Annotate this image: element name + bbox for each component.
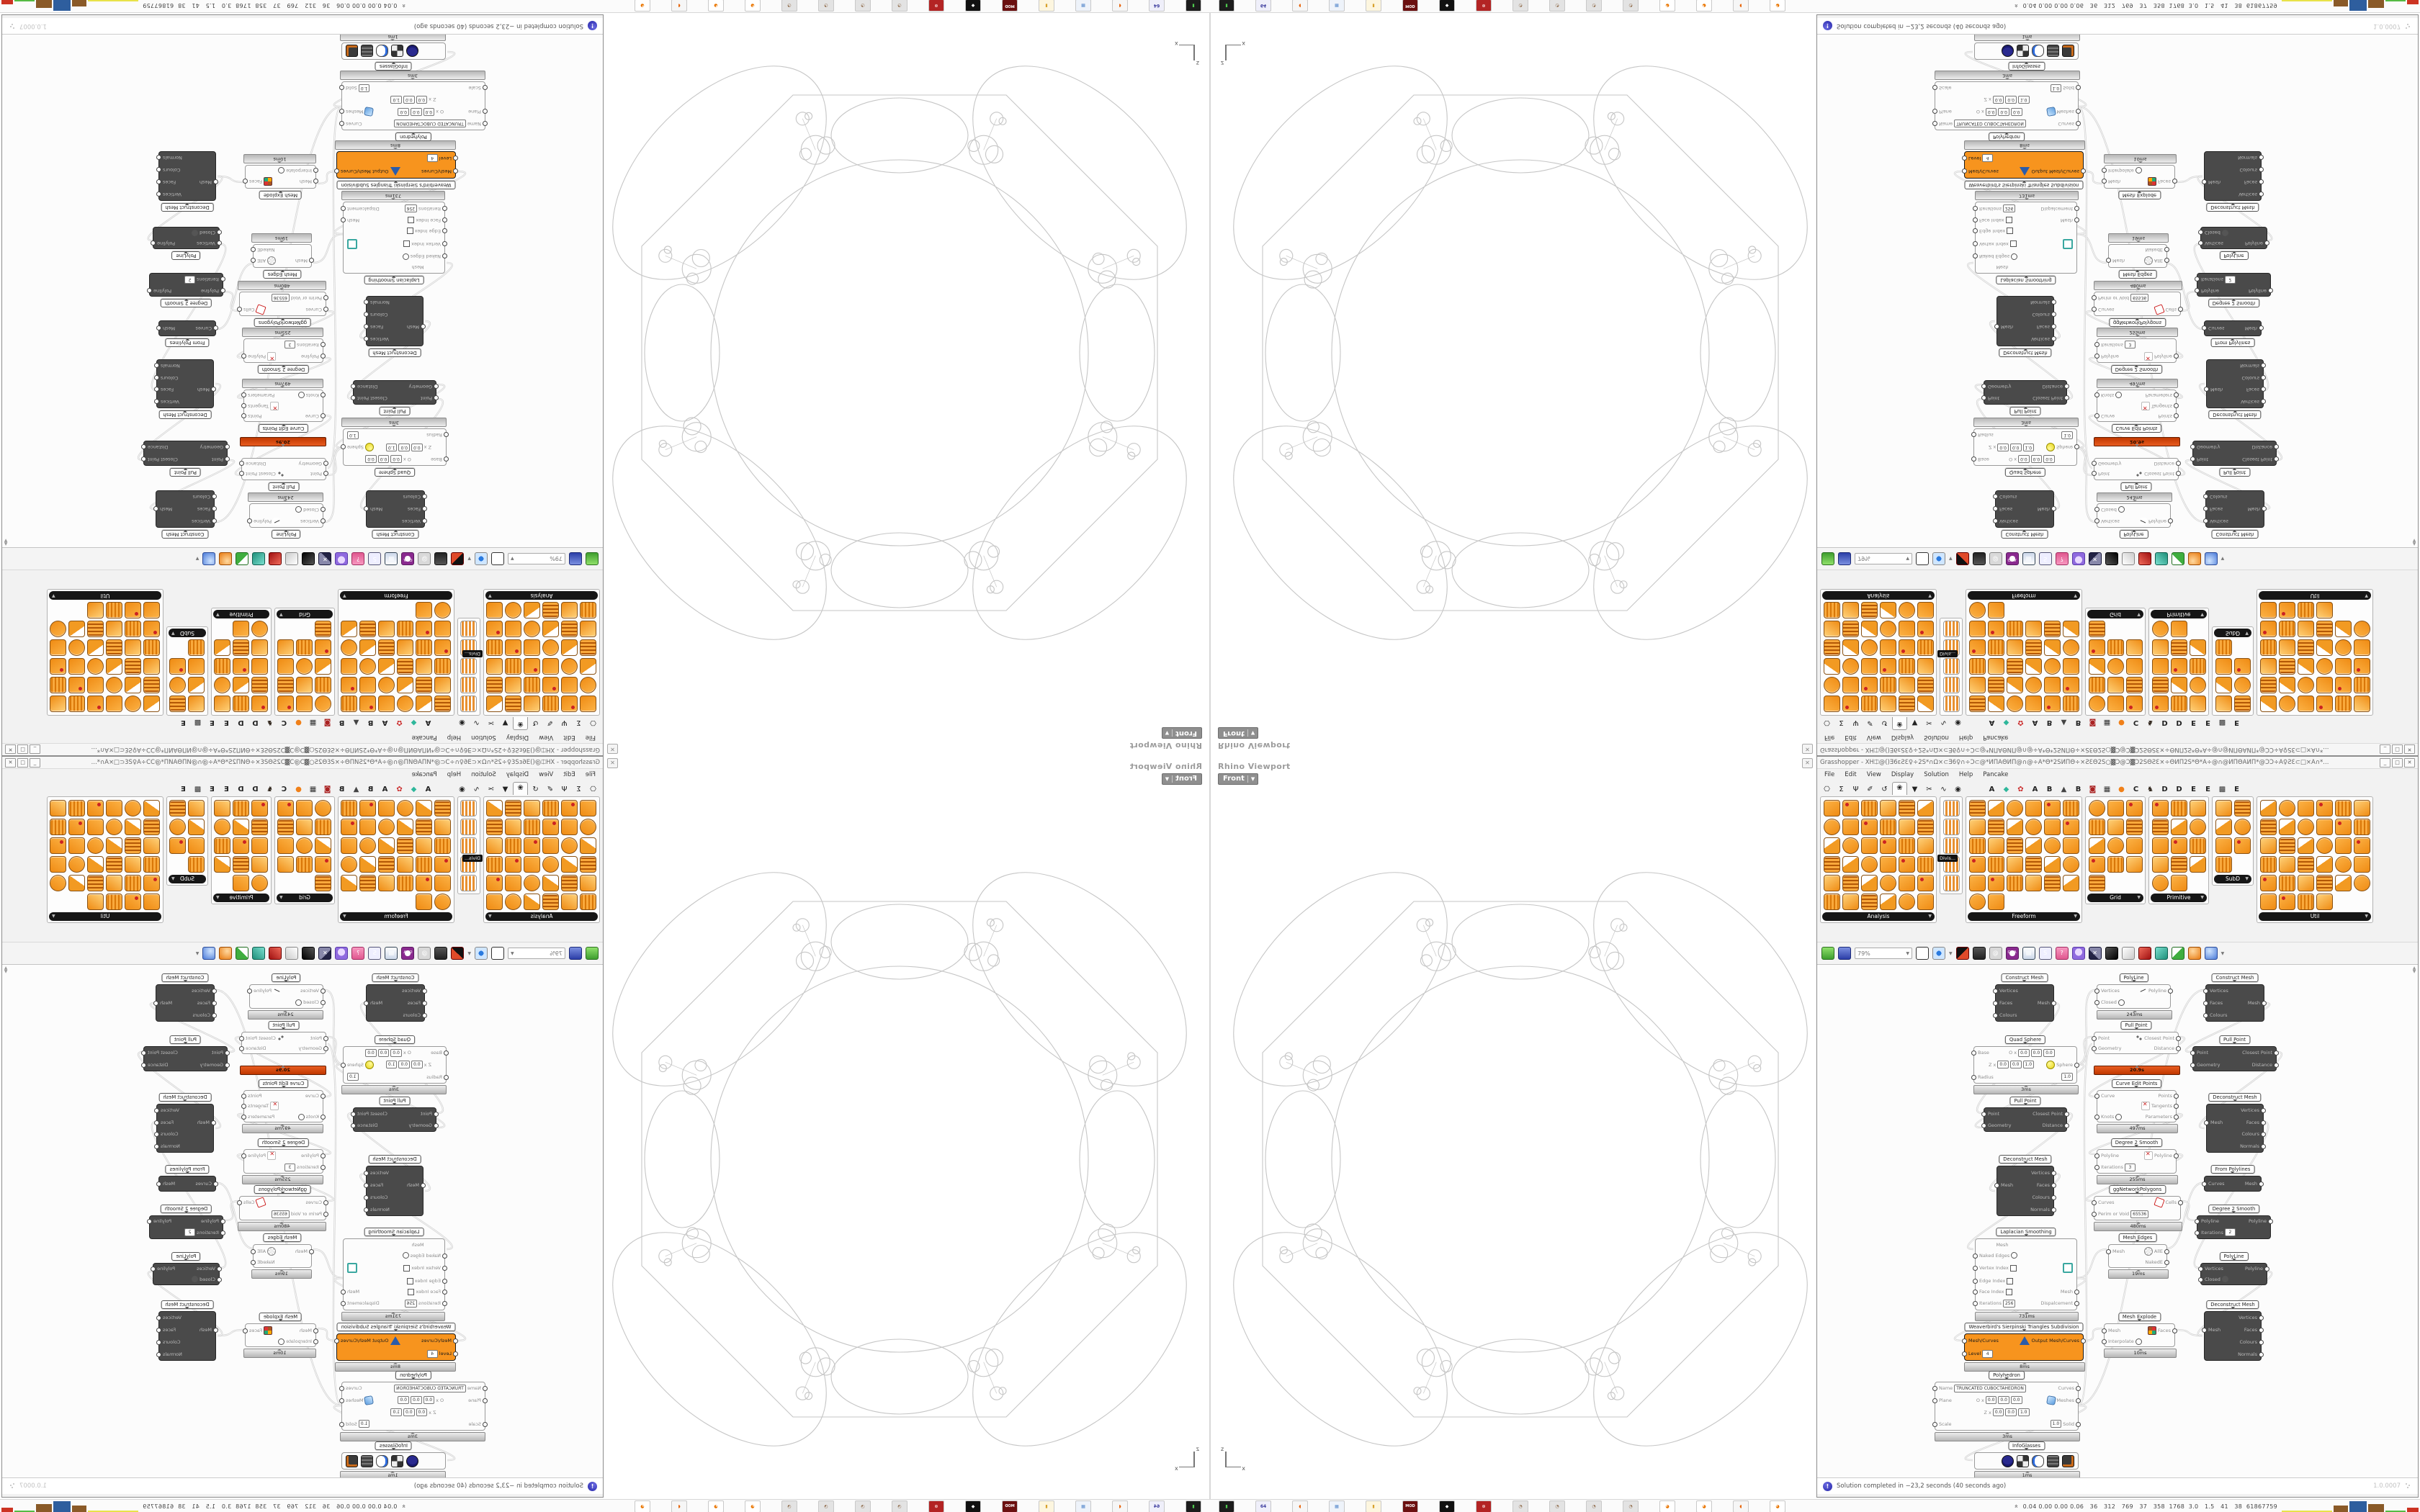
component-icon[interactable]	[581, 696, 597, 713]
component-icon[interactable]	[2215, 640, 2232, 657]
component-icon[interactable]	[233, 875, 250, 891]
open-file-icon[interactable]	[586, 947, 599, 960]
number-box[interactable]: 0.0	[378, 455, 390, 463]
palette-group-label[interactable]: Analysis▼	[1822, 912, 1935, 921]
component-icon[interactable]	[1861, 696, 1878, 713]
component-icon[interactable]	[581, 640, 597, 657]
component-icon[interactable]	[189, 678, 205, 694]
component-icon[interactable]	[1861, 659, 1878, 675]
gh-node-infoglasses[interactable]	[341, 1452, 446, 1470]
component-icon[interactable]	[487, 894, 503, 910]
component-icon[interactable]	[2126, 856, 2143, 873]
component-icon[interactable]	[69, 856, 86, 873]
toggle-circle[interactable]	[2118, 999, 2125, 1006]
tab-plugin-14[interactable]: E	[2187, 784, 2200, 795]
component-icon[interactable]	[2298, 621, 2314, 638]
component-icon[interactable]	[2007, 800, 2023, 816]
menu-item-help[interactable]: Help	[1959, 771, 1973, 778]
component-icon[interactable]	[2007, 875, 2023, 891]
tab-plugin-3[interactable]: A	[378, 717, 392, 728]
tab-curve[interactable]: ↺	[529, 784, 542, 795]
resize-grip[interactable]	[8, 1482, 15, 1490]
component-icon[interactable]	[2152, 800, 2169, 816]
component-icon[interactable]	[435, 800, 452, 816]
toggle-circle[interactable]	[403, 253, 409, 260]
component-icon[interactable]	[2234, 696, 2251, 713]
component-icon[interactable]	[1943, 837, 1960, 854]
component-icon[interactable]	[233, 621, 250, 638]
toggle-circle[interactable]	[2136, 168, 2142, 174]
rhino-app-icon[interactable]: ◆	[965, 1500, 981, 1512]
gh-node-pull-point-a[interactable]: PointClosest PointGeometryDistance	[353, 1107, 436, 1132]
ball-blue-icon[interactable]	[2205, 552, 2218, 565]
helix-icon[interactable]: ✕	[318, 552, 331, 565]
gh-node-weaverbird-sierpinski[interactable]: Mesh/CurvesOutput Mesh/CurvesLevel4	[336, 151, 456, 179]
component-icon[interactable]	[252, 678, 269, 694]
component-icon[interactable]	[297, 696, 313, 713]
infoglasses-icon-3[interactable]	[361, 45, 373, 58]
gh-node-degree-2-smooth-b[interactable]: PolylinePolylineIterations3	[243, 1149, 323, 1174]
number-box[interactable]: 1.0	[2023, 1061, 2035, 1068]
firefox-icon[interactable]: ◖	[1112, 1500, 1128, 1512]
gh-node-laplacian-smoothing[interactable]: MeshNaked EdgesVertex IndexEdge IndexFac…	[343, 1238, 445, 1310]
number-box[interactable]: 0.0	[411, 444, 423, 451]
menu-item-pancake[interactable]: Pancake	[412, 734, 437, 741]
viewport-tab-front[interactable]: Front▼	[1162, 773, 1202, 785]
tab-plugin-0[interactable]: A	[421, 717, 435, 728]
component-icon[interactable]	[1988, 678, 2004, 694]
component-icon[interactable]	[2152, 659, 2169, 675]
gh-node-quad-sphere[interactable]: BaseO x0.00.00.0Z x0.00.01.0SphereRadius…	[343, 428, 447, 466]
component-icon[interactable]	[189, 696, 205, 713]
component-icon[interactable]	[2260, 696, 2277, 713]
component-icon[interactable]	[2354, 621, 2370, 638]
component-icon[interactable]	[2107, 856, 2124, 873]
component-icon[interactable]	[315, 819, 332, 835]
component-icon[interactable]	[360, 621, 377, 638]
value-box[interactable]: 3	[284, 341, 295, 348]
value-box[interactable]: 256	[2003, 1300, 2015, 1308]
component-icon[interactable]	[2316, 856, 2333, 873]
tab-plugin-1[interactable]: ◆	[407, 784, 421, 795]
component-icon[interactable]	[2025, 640, 2042, 657]
toggle-circle[interactable]	[192, 1276, 198, 1282]
gimp-palette-2-icon[interactable]: ◔	[1549, 1500, 1565, 1512]
infoglasses-icon-2[interactable]	[2032, 45, 2044, 58]
value-box[interactable]: 1.0	[2061, 1073, 2073, 1081]
toggle-circle[interactable]	[2115, 1114, 2122, 1120]
component-icon[interactable]	[581, 856, 597, 873]
component-icon[interactable]	[125, 856, 142, 873]
gimp-palette-1-icon[interactable]: ◔	[892, 1500, 907, 1512]
gh-node-from-polylines[interactable]: CurvesMesh	[158, 1176, 216, 1192]
number-box[interactable]: 0.0	[398, 108, 410, 116]
at-badge-icon[interactable]: @	[418, 947, 431, 960]
toggle-circle[interactable]	[295, 999, 302, 1006]
number-box[interactable]: 0.0	[399, 1061, 411, 1068]
tab-plugin-8[interactable]: ▦	[306, 717, 320, 728]
tab-plugin-11[interactable]: ♞	[263, 717, 277, 728]
value-box[interactable]: TRUNCATED CUBOCTAHEDRON	[1954, 1385, 2026, 1392]
component-icon[interactable]	[1969, 621, 1986, 638]
gh-node-pull-point-c[interactable]: PointClosest PointGeometryDistance	[143, 1046, 228, 1071]
gem-white-icon[interactable]	[285, 552, 298, 565]
gh-node-degree-2-smooth-b[interactable]: PolylinePolylineIterations3	[2097, 1149, 2177, 1174]
ball-orange-icon[interactable]	[219, 947, 232, 960]
sketch-pen-icon[interactable]	[1956, 552, 1969, 565]
gem-red-icon[interactable]	[269, 552, 282, 565]
component-icon[interactable]	[144, 621, 161, 638]
firefox-2-icon[interactable]: ◖	[671, 1500, 687, 1512]
number-box[interactable]: 0.0	[403, 1408, 415, 1416]
gh-node-ggnetworkpolygons[interactable]: CurvesCellsPerim or Void65536	[239, 292, 326, 316]
component-icon[interactable]	[1943, 659, 1960, 675]
component-icon[interactable]	[2152, 678, 2169, 694]
component-icon[interactable]	[2260, 640, 2277, 657]
firefox-2-icon[interactable]: ◖	[1733, 1500, 1749, 1512]
component-icon[interactable]	[2316, 696, 2333, 713]
tab-plugin-14[interactable]: E	[220, 717, 233, 728]
component-icon[interactable]	[461, 875, 478, 891]
component-icon[interactable]	[2063, 800, 2079, 816]
value-box[interactable]: 1.0	[359, 1420, 370, 1428]
infoglasses-icon-0[interactable]	[406, 1455, 418, 1467]
tab-plugin-5[interactable]: ▲	[2057, 717, 2071, 728]
component-icon[interactable]	[1880, 837, 1896, 854]
component-icon[interactable]	[69, 875, 86, 891]
tab-plugin-15[interactable]: E	[2201, 717, 2215, 728]
component-icon[interactable]	[2354, 659, 2370, 675]
component-icon[interactable]	[506, 678, 522, 694]
component-icon[interactable]	[2025, 696, 2042, 713]
toggle-circle[interactable]	[298, 1114, 305, 1120]
component-icon[interactable]	[1899, 800, 1915, 816]
component-icon[interactable]	[543, 659, 560, 675]
menu-item-file[interactable]: File	[586, 734, 596, 741]
value-box[interactable]: 65536	[2130, 1210, 2148, 1218]
component-icon[interactable]	[562, 819, 578, 835]
gh-node-polyline-c[interactable]: VerticesPolylineClosed	[2200, 227, 2267, 249]
component-icon[interactable]	[88, 696, 104, 713]
number-box[interactable]: 0.0	[2005, 1408, 2017, 1416]
component-icon[interactable]	[2234, 678, 2251, 694]
component-icon[interactable]	[278, 659, 295, 675]
component-icon[interactable]	[215, 800, 231, 816]
component-icon[interactable]	[2025, 875, 2042, 891]
component-icon[interactable]	[379, 856, 395, 873]
component-icon[interactable]	[524, 659, 541, 675]
palette-group-label[interactable]: Util▼	[49, 912, 161, 921]
component-icon[interactable]	[379, 678, 395, 694]
number-box[interactable]: 1.0	[386, 444, 398, 451]
component-icon[interactable]	[562, 856, 578, 873]
component-icon[interactable]	[252, 837, 269, 854]
component-icon[interactable]	[2025, 819, 2042, 835]
gh-node-deconstruct-mesh-c1[interactable]: VerticesMeshFacesColoursNormals	[156, 1104, 214, 1153]
component-icon[interactable]	[341, 678, 358, 694]
component-icon[interactable]	[1969, 856, 1986, 873]
component-icon[interactable]	[1842, 875, 1859, 891]
component-icon[interactable]	[125, 819, 142, 835]
component-icon[interactable]	[562, 678, 578, 694]
component-icon[interactable]	[107, 603, 123, 619]
save-file-icon[interactable]	[1838, 552, 1851, 565]
tab-plugin-6[interactable]: B	[335, 717, 349, 728]
value-box[interactable]: TRUNCATED CUBOCTAHEDRON	[394, 120, 466, 127]
palette-group-label[interactable]: Analysis▼	[1822, 591, 1935, 600]
component-icon[interactable]	[125, 621, 142, 638]
gha-loader-icon[interactable]: GHA	[401, 552, 414, 565]
component-icon[interactable]	[2007, 621, 2023, 638]
number-box[interactable]: 0.0	[390, 455, 402, 463]
ball-orange-icon[interactable]	[2188, 947, 2201, 960]
gem-white-icon[interactable]	[2122, 552, 2135, 565]
component-icon[interactable]	[69, 640, 86, 657]
exit-door-icon[interactable]	[1973, 552, 1986, 565]
dosbox-64-icon[interactable]: 64	[1149, 0, 1165, 12]
panel-close-button[interactable]: ✕	[1802, 744, 1813, 754]
gh-node-construct-mesh-a[interactable]: VerticesFacesMeshColours	[1995, 490, 2054, 528]
mod-tracker-icon[interactable]: MOD	[1002, 0, 1018, 12]
exit-door-icon[interactable]	[1973, 947, 1986, 960]
component-icon[interactable]	[416, 819, 433, 835]
component-icon[interactable]	[461, 696, 478, 713]
component-icon[interactable]	[543, 837, 560, 854]
component-icon[interactable]	[278, 856, 295, 873]
component-icon[interactable]	[69, 696, 86, 713]
gh-node-mesh-explode[interactable]: MeshFacesInterpolate	[245, 1323, 316, 1347]
component-icon[interactable]	[2215, 819, 2232, 835]
component-icon[interactable]	[581, 659, 597, 675]
panel-close-button[interactable]: ✕	[1802, 758, 1813, 768]
value-box[interactable]: 3	[2125, 341, 2136, 348]
component-icon[interactable]	[50, 640, 67, 657]
component-icon[interactable]	[435, 621, 452, 638]
component-icon[interactable]	[170, 678, 187, 694]
toggle-circle[interactable]	[278, 168, 284, 174]
gh-node-construct-mesh-a[interactable]: VerticesFacesMeshColours	[366, 490, 425, 528]
gh-node-quad-sphere[interactable]: BaseO x0.00.00.0Z x0.00.01.0SphereRadius…	[1973, 428, 2077, 466]
component-icon[interactable]	[315, 659, 332, 675]
gh-node-mesh-explode[interactable]: MeshFacesInterpolate	[2104, 165, 2175, 189]
component-icon[interactable]	[2063, 621, 2079, 638]
component-icon[interactable]	[1880, 621, 1896, 638]
gem-red-icon[interactable]	[2138, 552, 2151, 565]
component-icon[interactable]	[2298, 800, 2314, 816]
component-icon[interactable]	[341, 819, 358, 835]
component-icon[interactable]	[189, 640, 205, 657]
component-icon[interactable]	[2171, 819, 2187, 835]
number-box[interactable]: 0.0	[390, 1049, 402, 1057]
component-icon[interactable]	[379, 621, 395, 638]
toggle-circle[interactable]	[403, 1252, 409, 1259]
component-icon[interactable]	[487, 819, 503, 835]
component-icon[interactable]	[125, 659, 142, 675]
component-icon[interactable]	[461, 819, 478, 835]
component-icon[interactable]	[398, 621, 414, 638]
number-box[interactable]: 0.0	[416, 1408, 428, 1416]
component-icon[interactable]	[2171, 696, 2187, 713]
infoglasses-icon-2[interactable]	[376, 1455, 388, 1467]
component-icon[interactable]	[341, 659, 358, 675]
component-icon[interactable]	[278, 800, 295, 816]
component-icon[interactable]	[2190, 800, 2206, 816]
gimp-palette-3-icon[interactable]: ◔	[1586, 0, 1602, 12]
component-icon[interactable]	[278, 640, 295, 657]
tab-display[interactable]: ◉	[1951, 784, 1965, 795]
system-monitor-icon[interactable]: ▮	[1219, 0, 1234, 12]
component-icon[interactable]	[2335, 678, 2352, 694]
number-box[interactable]: 1.0	[2023, 444, 2035, 451]
blender-3-icon[interactable]: ◕	[635, 0, 650, 12]
idea-bulb-icon[interactable]	[2072, 947, 2085, 960]
component-icon[interactable]	[2215, 856, 2232, 873]
component-icon[interactable]	[1917, 659, 1934, 675]
gh-node-mesh-edges[interactable]: MeshAllENakedE	[2108, 244, 2167, 268]
minimize-button[interactable]: _	[2380, 758, 2390, 768]
value-box[interactable]: 256	[405, 1300, 417, 1308]
gh-node-quad-sphere[interactable]: BaseO x0.00.00.0Z x0.00.01.0SphereRadius…	[343, 1046, 447, 1084]
tab-plugin-12[interactable]: D	[248, 784, 262, 795]
component-icon[interactable]	[416, 678, 433, 694]
number-box[interactable]: 0.0	[1986, 1396, 1997, 1404]
tab-plugin-1[interactable]: ◆	[407, 717, 421, 728]
tab-plugin-15[interactable]: E	[205, 784, 219, 795]
component-icon[interactable]	[170, 837, 187, 854]
component-icon[interactable]	[1899, 875, 1915, 891]
surprise-box-icon[interactable]: ?	[351, 552, 364, 565]
component-icon[interactable]	[1880, 856, 1896, 873]
number-box[interactable]: 0.0	[2031, 1049, 2043, 1057]
tab-vector[interactable]: ✐	[1863, 717, 1877, 728]
file-manager-icon[interactable]: ▮	[1039, 0, 1054, 12]
blender-1-icon[interactable]: ◕	[1659, 0, 1675, 12]
tab-plugin-15[interactable]: E	[2201, 784, 2215, 795]
component-icon[interactable]	[2279, 800, 2295, 816]
gimp-palette-2-icon[interactable]: ◔	[1549, 0, 1565, 12]
component-icon[interactable]	[50, 678, 67, 694]
save-file-icon[interactable]	[569, 552, 582, 565]
component-icon[interactable]	[215, 640, 231, 657]
component-icon[interactable]	[233, 800, 250, 816]
rhino-app-icon[interactable]: ◆	[1439, 0, 1455, 12]
gh-node-quad-sphere[interactable]: BaseO x0.00.00.0Z x0.00.01.0SphereRadius…	[1973, 1046, 2077, 1084]
component-icon[interactable]	[1943, 621, 1960, 638]
component-icon[interactable]	[233, 640, 250, 657]
component-icon[interactable]	[107, 800, 123, 816]
component-icon[interactable]	[1861, 640, 1878, 657]
component-icon[interactable]	[524, 875, 541, 891]
component-icon[interactable]	[398, 837, 414, 854]
tab-sets[interactable]: Ψ	[557, 717, 571, 728]
blender-2-icon[interactable]: ◕	[1696, 1500, 1712, 1512]
maximize-button[interactable]: □	[17, 758, 28, 768]
component-icon[interactable]	[581, 678, 597, 694]
number-box[interactable]: 0.0	[2018, 1049, 2030, 1057]
infoglasses-icon-1[interactable]	[391, 45, 403, 58]
gimp-palette-4-icon[interactable]: ◔	[1623, 1500, 1639, 1512]
component-icon[interactable]	[360, 659, 377, 675]
component-icon[interactable]	[1824, 819, 1840, 835]
component-icon[interactable]	[315, 678, 332, 694]
component-icon[interactable]	[543, 678, 560, 694]
component-icon[interactable]	[487, 621, 503, 638]
menu-item-edit[interactable]: Edit	[1845, 771, 1856, 778]
gem-black-icon[interactable]	[302, 552, 315, 565]
component-icon[interactable]	[416, 837, 433, 854]
component-icon[interactable]	[524, 856, 541, 873]
tab-surface[interactable]: ❀	[1892, 717, 1907, 730]
tab-plugin-15[interactable]: E	[205, 717, 219, 728]
component-icon[interactable]	[2107, 678, 2124, 694]
maximize-button[interactable]: □	[2392, 745, 2403, 755]
component-icon[interactable]	[1899, 640, 1915, 657]
component-icon[interactable]	[50, 875, 67, 891]
tab-plugin-4[interactable]: B	[2043, 784, 2056, 795]
component-icon[interactable]	[360, 678, 377, 694]
toggle-circle[interactable]	[2115, 392, 2122, 398]
component-icon[interactable]	[2260, 819, 2277, 835]
component-icon[interactable]	[1899, 603, 1915, 619]
component-icon[interactable]	[2316, 659, 2333, 675]
tab-mesh[interactable]: ▼	[498, 717, 512, 728]
infoglasses-icon-1[interactable]	[2017, 1455, 2029, 1467]
gem-black-icon[interactable]	[302, 947, 315, 960]
component-icon[interactable]	[2171, 640, 2187, 657]
component-icon[interactable]	[562, 894, 578, 910]
gh-canvas[interactable]: VerticesFacesMeshColoursConstruct MeshBa…	[1817, 35, 2418, 547]
open-file-icon[interactable]	[1821, 552, 1834, 565]
component-icon[interactable]	[2063, 678, 2079, 694]
component-icon[interactable]	[2063, 875, 2079, 891]
component-icon[interactable]	[2025, 856, 2042, 873]
number-box[interactable]: 1.0	[2018, 1408, 2030, 1416]
search-s-icon[interactable]: S	[2039, 947, 2052, 960]
gem-black-icon[interactable]	[2105, 552, 2118, 565]
infoglasses-icon-4[interactable]	[346, 1455, 358, 1467]
value-box[interactable]: 2	[2225, 276, 2236, 284]
toggle-square[interactable]	[403, 240, 410, 247]
component-icon[interactable]	[2171, 856, 2187, 873]
component-icon[interactable]	[487, 678, 503, 694]
component-icon[interactable]	[252, 621, 269, 638]
component-icon[interactable]	[107, 856, 123, 873]
gh-node-pull-point-c[interactable]: PointClosest PointGeometryDistance	[2192, 1046, 2277, 1071]
preview-eye-icon[interactable]	[475, 947, 488, 960]
note-finder-icon[interactable]: ▤	[2022, 947, 2035, 960]
tab-plugin-5[interactable]: ▲	[349, 784, 363, 795]
component-icon[interactable]	[2126, 696, 2143, 713]
component-icon[interactable]	[2007, 856, 2023, 873]
component-icon[interactable]	[1943, 875, 1960, 891]
value-box[interactable]: 1.0	[2051, 1420, 2062, 1428]
number-box[interactable]: 0.0	[411, 1396, 422, 1404]
component-icon[interactable]	[2316, 678, 2333, 694]
component-icon[interactable]	[1988, 603, 2004, 619]
gem-white-icon[interactable]	[285, 947, 298, 960]
component-icon[interactable]	[1917, 800, 1934, 816]
component-icon[interactable]	[297, 856, 313, 873]
palette-group-label[interactable]: Freeform▼	[340, 912, 452, 921]
value-box[interactable]: 1.0	[347, 431, 359, 439]
component-icon[interactable]	[2335, 819, 2352, 835]
component-icon[interactable]	[524, 837, 541, 854]
component-icon[interactable]	[2316, 819, 2333, 835]
component-icon[interactable]	[125, 678, 142, 694]
component-icon[interactable]	[2298, 696, 2314, 713]
component-icon[interactable]	[398, 800, 414, 816]
rhino-viewport[interactable]: Rhino ViewportFront▼xz	[1210, 756, 1817, 1499]
